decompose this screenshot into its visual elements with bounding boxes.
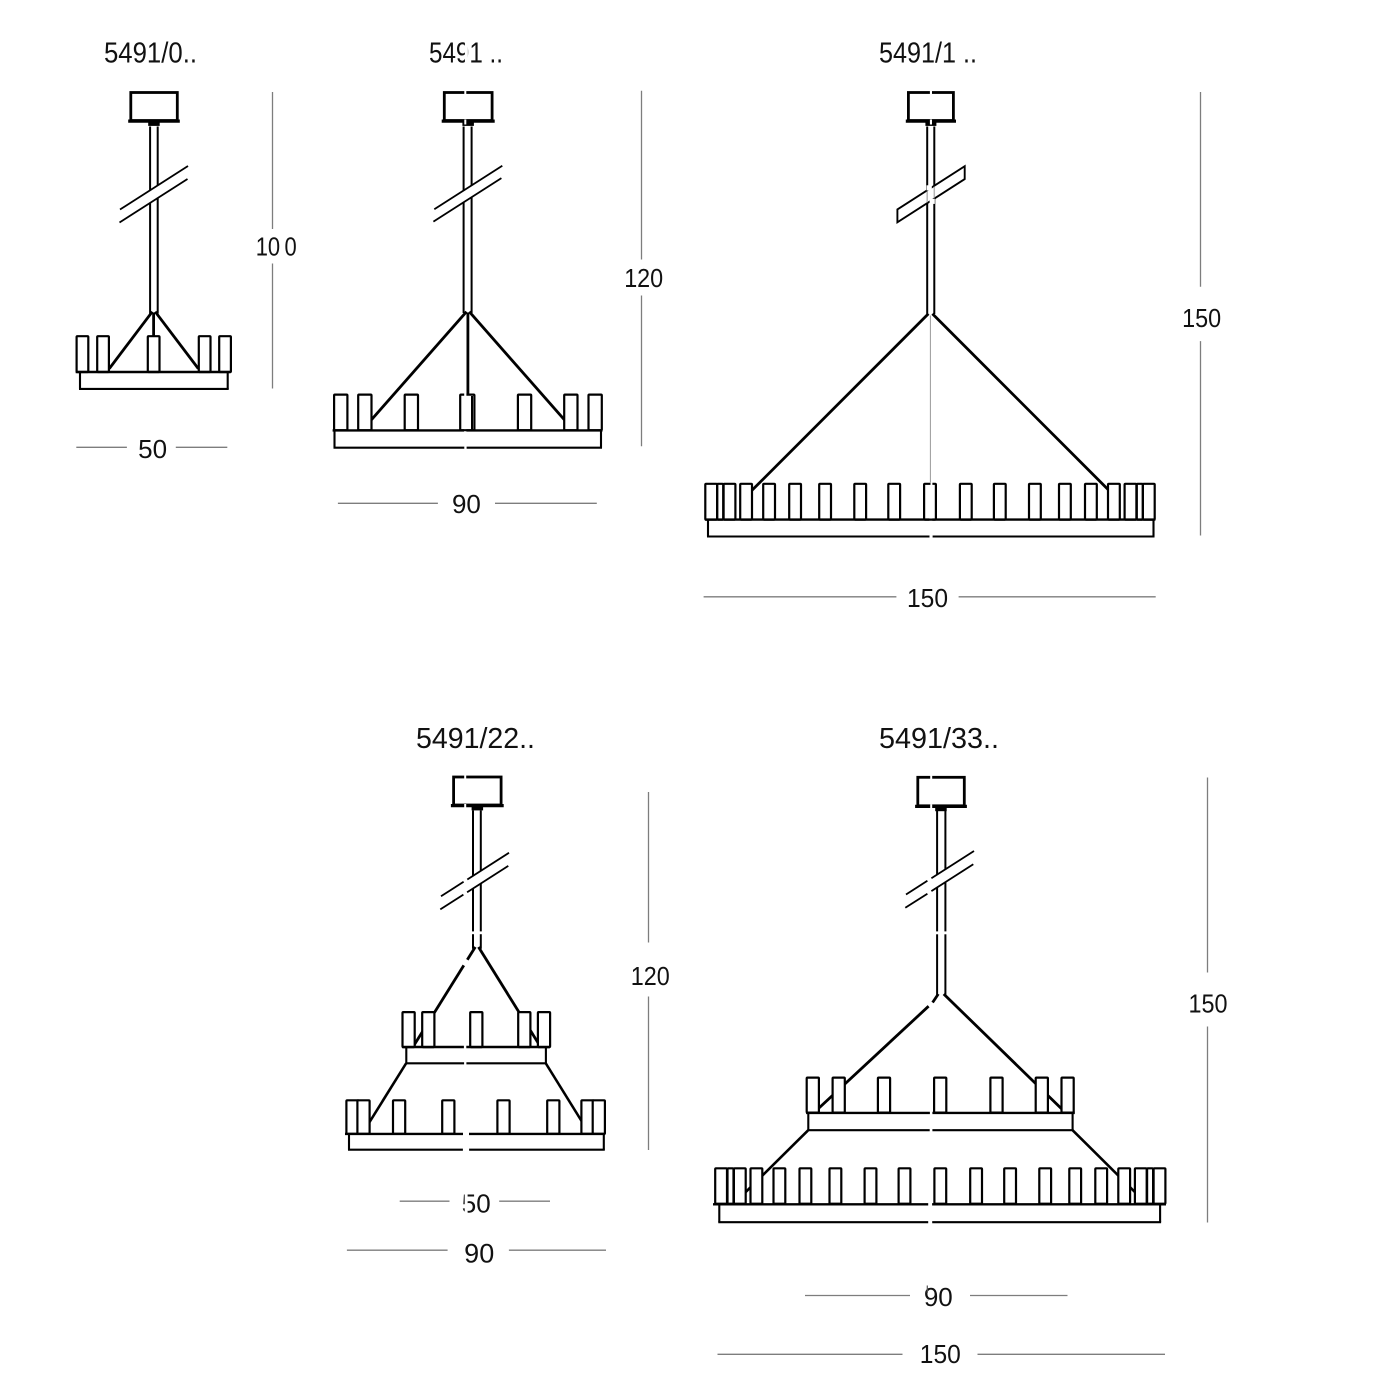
svg-text:120: 120: [631, 961, 670, 991]
svg-text:5491/0..: 5491/0..: [104, 38, 197, 70]
svg-text:10 0: 10 0: [256, 231, 297, 261]
svg-text:150: 150: [920, 1339, 961, 1369]
svg-text:90: 90: [924, 1282, 953, 1312]
svg-text:5491/22..: 5491/22..: [416, 723, 535, 755]
svg-text:50: 50: [138, 434, 167, 464]
svg-text:150: 150: [1182, 303, 1221, 333]
svg-text:5491/33..: 5491/33..: [879, 723, 999, 755]
svg-text:120: 120: [624, 263, 663, 293]
svg-text:5491/1 ..: 5491/1 ..: [879, 38, 977, 70]
svg-text:90: 90: [464, 1238, 494, 1268]
svg-text:150: 150: [1189, 988, 1228, 1018]
svg-text:150: 150: [907, 583, 948, 613]
svg-text:90: 90: [452, 489, 481, 519]
